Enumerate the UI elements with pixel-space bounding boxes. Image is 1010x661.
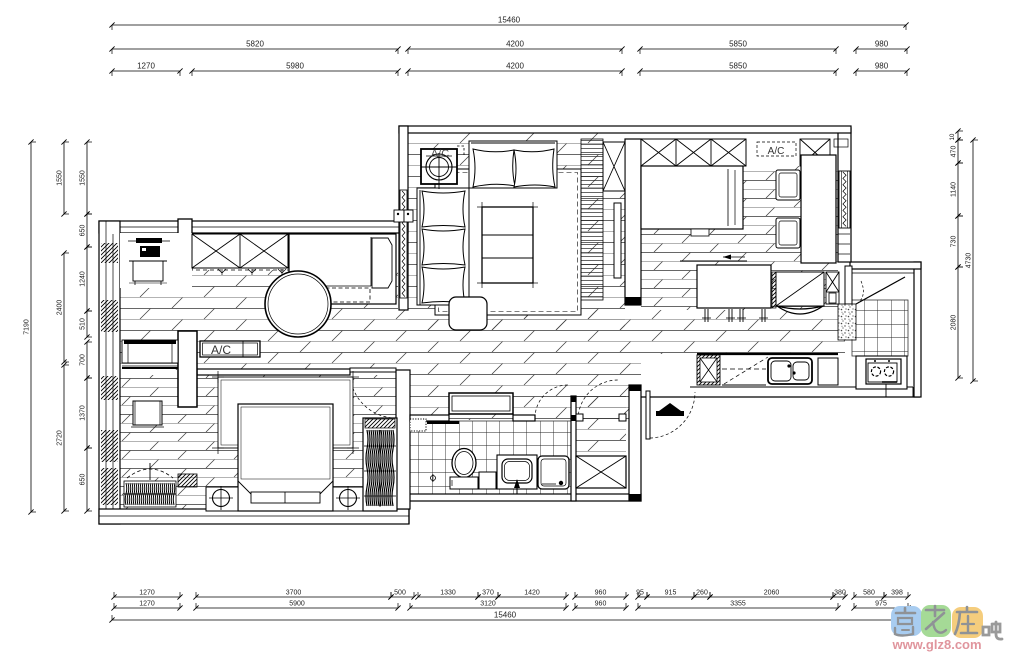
svg-text:1140: 1140 bbox=[951, 182, 958, 197]
svg-text:5980: 5980 bbox=[286, 62, 304, 71]
svg-text:260: 260 bbox=[696, 590, 708, 597]
svg-text:1330: 1330 bbox=[440, 590, 456, 597]
svg-text:1270: 1270 bbox=[137, 62, 155, 71]
svg-text:1550: 1550 bbox=[57, 170, 64, 186]
svg-text:470: 470 bbox=[951, 146, 958, 158]
svg-text:1420: 1420 bbox=[524, 590, 540, 597]
svg-text:1550: 1550 bbox=[80, 170, 87, 186]
svg-text:960: 960 bbox=[595, 590, 607, 597]
svg-text:3120: 3120 bbox=[480, 601, 496, 608]
svg-text:2080: 2080 bbox=[951, 315, 958, 331]
svg-text:2720: 2720 bbox=[57, 430, 64, 446]
svg-text:975: 975 bbox=[875, 601, 887, 608]
svg-text:1370: 1370 bbox=[80, 405, 87, 421]
svg-text:980: 980 bbox=[875, 62, 889, 71]
svg-text:380: 380 bbox=[834, 590, 846, 597]
svg-text:510: 510 bbox=[80, 318, 87, 330]
svg-text:3700: 3700 bbox=[286, 590, 302, 597]
svg-text:A/C: A/C bbox=[768, 146, 785, 157]
svg-text:15460: 15460 bbox=[498, 16, 521, 25]
svg-text:4730: 4730 bbox=[966, 253, 973, 269]
svg-text:5850: 5850 bbox=[729, 40, 747, 49]
svg-text:370: 370 bbox=[482, 590, 494, 597]
svg-text:5820: 5820 bbox=[246, 40, 264, 49]
svg-text:2400: 2400 bbox=[57, 300, 64, 316]
svg-text:980: 980 bbox=[875, 40, 889, 49]
svg-text:915: 915 bbox=[665, 590, 677, 597]
svg-text:650: 650 bbox=[80, 474, 87, 486]
svg-text:www.glz8.com: www.glz8.com bbox=[891, 637, 981, 652]
svg-text:2060: 2060 bbox=[764, 590, 780, 597]
svg-text:700: 700 bbox=[80, 354, 87, 366]
svg-text:3355: 3355 bbox=[730, 601, 746, 608]
svg-text:5850: 5850 bbox=[729, 62, 747, 71]
svg-text:7190: 7190 bbox=[24, 319, 31, 335]
svg-text:A/C: A/C bbox=[211, 343, 231, 357]
svg-text:580: 580 bbox=[863, 590, 875, 597]
svg-text:95: 95 bbox=[636, 590, 644, 597]
svg-text:4200: 4200 bbox=[506, 40, 524, 49]
svg-text:10: 10 bbox=[950, 133, 956, 140]
svg-text:4200: 4200 bbox=[506, 62, 524, 71]
svg-text:730: 730 bbox=[951, 236, 958, 248]
svg-text:650: 650 bbox=[80, 225, 87, 237]
svg-text:5900: 5900 bbox=[289, 601, 305, 608]
svg-text:960: 960 bbox=[595, 601, 607, 608]
svg-text:A/C: A/C bbox=[431, 148, 449, 160]
svg-text:15460: 15460 bbox=[494, 611, 517, 620]
svg-text:500: 500 bbox=[394, 590, 406, 597]
svg-text:1240: 1240 bbox=[80, 271, 87, 287]
svg-text:398: 398 bbox=[891, 590, 903, 597]
svg-text:1270: 1270 bbox=[139, 601, 155, 608]
svg-text:1270: 1270 bbox=[139, 590, 155, 597]
